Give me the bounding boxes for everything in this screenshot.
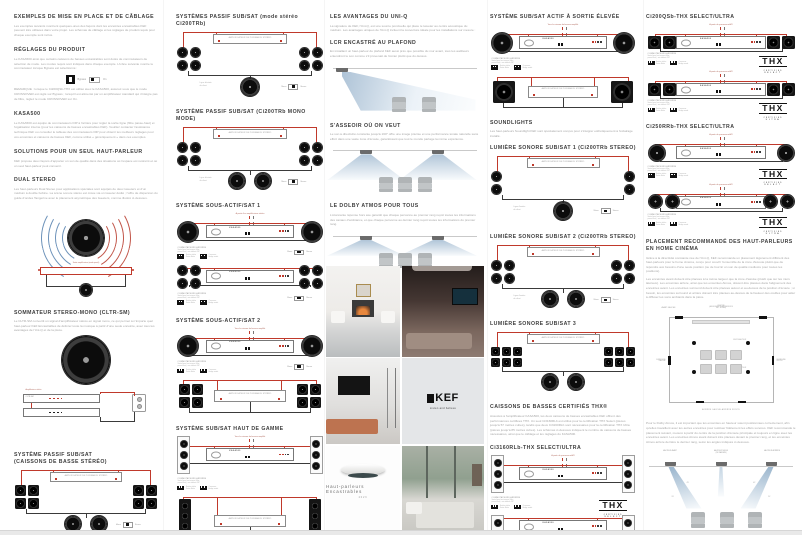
wire-segment (660, 161, 783, 162)
ceiling-speaker-icon (360, 236, 372, 240)
wire-segment (204, 255, 205, 257)
terminal-icon (57, 398, 59, 400)
section: LUMIÈRE SONORE SUB/SAT 2 (Ci200TRb STERE… (490, 234, 636, 312)
section-paragraph: KEF propose deux façons d'apporter un so… (14, 159, 158, 168)
kef-logo-mark-icon (427, 394, 434, 403)
mode-toggle: MonoStereo (287, 364, 312, 370)
terminal-icon (279, 454, 281, 456)
toggle-knob-icon (297, 297, 300, 299)
toggle-label: Stereo (135, 524, 141, 526)
kef-logo: KEF (427, 393, 459, 404)
wire-segment (281, 497, 282, 515)
switch-settings-caption: COMMUTATEURS ARRIÈRESortie ligne haut ni… (491, 58, 558, 70)
section-paragraph: Les enceintes avant doivent être placées… (646, 277, 796, 300)
wire-segment (204, 301, 205, 303)
square-speaker-icon (179, 397, 190, 408)
wall-art (356, 284, 371, 297)
ceiling-speaker-icon (432, 236, 444, 240)
terminal-icon (597, 525, 599, 527)
wire-segment (503, 51, 623, 52)
wire-segment (515, 66, 516, 68)
terminal-icon (597, 41, 599, 43)
fold-line (163, 0, 164, 531)
diagram-caption: Ligne d'entréedu client (200, 177, 212, 182)
switch-icon (245, 456, 247, 459)
window-frame (426, 446, 428, 498)
kasa-amplifier: KASA500 (676, 146, 766, 159)
section: Ci250RRb-THX SELECT/ULTRAÀ partir du pro… (646, 124, 796, 229)
chair-icon (398, 177, 412, 192)
switch-icon (248, 232, 250, 235)
wire-segment (201, 486, 202, 488)
amplifier-label: AMPLIFICATEUR DE PUISSANCE STÉRÉO (528, 337, 599, 339)
speaker-group (15, 485, 39, 509)
section: LE DOLBY ATMOS POUR TOUSL'étonnante répo… (330, 203, 480, 270)
dip-label: Sortie filtrée (186, 256, 196, 258)
square-speaker-icon (179, 384, 190, 395)
round-speaker-icon (491, 32, 513, 54)
terminal-icon (285, 345, 287, 347)
dip-switch-icon (670, 61, 677, 66)
toggle-track-icon (294, 364, 304, 370)
terminal-icon (751, 201, 753, 203)
tv-screen (452, 288, 478, 305)
wire-segment (499, 34, 628, 35)
ceiling-speaker-dot-icon (692, 341, 696, 345)
atmos-label-group: HAUTEUR MILIEU(2E RANGÉE) (703, 450, 739, 454)
speaker-group (648, 194, 680, 209)
wall-art (472, 464, 482, 486)
mode-toggle: MonoStereo (287, 250, 312, 256)
section-heading: SOLUTIONS POUR UN SEUL HAUT-PARLEUR (14, 149, 158, 156)
round-speaker-icon (491, 184, 502, 195)
wire-segment (671, 174, 672, 176)
photo-living-room-fireplace (326, 266, 400, 357)
kasa-label: KASA500 (229, 341, 240, 343)
terminal-icon (220, 523, 222, 525)
subwoofer-icon (542, 291, 558, 307)
wire-segment (201, 255, 202, 257)
wire-segment (655, 144, 787, 145)
toggle-track-icon (294, 250, 304, 256)
section-heading: CAISSONS DE BASSES CERTIFIÉS THX® (490, 404, 636, 411)
wire-segment (100, 421, 135, 422)
room-label: DE L'ÉCRAN) (691, 308, 751, 309)
wire-segment (201, 301, 202, 303)
wire-segment (181, 301, 182, 303)
speaker-group (624, 171, 635, 195)
dip-label: Sortie filtrée (186, 302, 196, 304)
tower-speaker-white-icon (491, 455, 504, 493)
thx-logo: THX (759, 217, 787, 228)
wire-segment (333, 68, 477, 69)
dip-labels: Entrée stéréoSortie filtrée (186, 254, 196, 258)
terminal-icon (282, 454, 284, 456)
square-speaker-icon (493, 81, 515, 103)
switch-icon (561, 43, 563, 46)
wire-segment (217, 497, 218, 515)
chair-icon (418, 177, 432, 192)
wire-segment (756, 81, 757, 83)
ceiling-light (412, 266, 472, 271)
square-speaker-icon (648, 83, 661, 96)
chair-seat (748, 517, 762, 524)
dip-switch-icon (514, 65, 521, 70)
round-speaker-icon (190, 278, 201, 289)
wire-segment (21, 470, 151, 471)
chair-seat (418, 183, 432, 190)
round-speaker-icon (613, 32, 635, 54)
dip-group: CrossoverBridge mode (200, 300, 218, 305)
speaker-group (297, 384, 321, 408)
round-speaker-icon (301, 221, 323, 243)
wire-segment (284, 223, 285, 225)
dip-switch-icon (200, 300, 207, 305)
fold-line (324, 0, 325, 531)
square-speaker-icon (28, 498, 39, 509)
kasa-label: KASA500 (229, 450, 240, 452)
amplifier-label: AMPLIFICATEUR DE PUISSANCE STÉRÉO (51, 475, 121, 477)
fire (356, 306, 370, 315)
wire-segment (563, 288, 564, 293)
toggle-label: Mono (594, 299, 599, 301)
section: LUMIÈRE SONORE SUB/SAT 1 (Ci200TRb STERE… (490, 145, 636, 225)
section: CAISSONS DE BASSES CERTIFIÉS THX®Associé… (490, 404, 636, 437)
toggle-label: Stereo (306, 251, 312, 253)
amplifier-bar: AMPLIFICATEUR DE PUISSANCE STÉRÉO (214, 390, 285, 402)
dip-group: Entrée stéréoSortie filtrée (648, 108, 667, 113)
square-speaker-icon (782, 36, 795, 49)
square-speaker-icon (663, 83, 676, 96)
atmos-label-group: HAUTEUR AVANT (652, 450, 688, 452)
round-speaker-icon (780, 194, 795, 209)
chair-icon (422, 97, 436, 112)
ceiling-speaker-icon (336, 68, 348, 72)
atmos-label-group: HAUTEUR ARRIÈRE (754, 450, 790, 452)
kef-oval-icon (211, 228, 221, 235)
toggle-track-icon (288, 179, 298, 185)
amplifier-label: AMPLIFICATEUR DE PUISSANCE STÉRÉO (215, 393, 284, 395)
switch-icon (719, 43, 721, 46)
sound-beam (717, 467, 725, 497)
round-speaker-icon (491, 260, 502, 271)
ceiling-speaker-icon (665, 462, 676, 466)
wire-segment (204, 486, 205, 488)
diagram-top-label: À partir du processeur A/V (646, 71, 796, 73)
wire-segment (333, 150, 477, 151)
terminal-icon (756, 201, 758, 203)
round-speaker-icon (299, 278, 310, 289)
section: SOUNDLIGHTSLes haut-parleurs Soundlight … (490, 120, 636, 139)
speaker-group (491, 260, 515, 284)
speaker-group (177, 265, 201, 289)
wire-segment (185, 446, 315, 447)
dip-label: Bridge mode (209, 302, 219, 304)
switch-track-icon (89, 77, 100, 83)
acoustic-illustration (330, 145, 480, 195)
kasa-amplifier: KASA500 (519, 36, 607, 49)
sound-cone (342, 72, 476, 111)
wire-segment (46, 275, 47, 286)
diagram-top-label: À partir du processeur A/V (646, 24, 796, 26)
toggle-label: Mono (287, 251, 292, 253)
dip-row: Entrée stéréoSortie filtréeCrossoverBrid… (177, 300, 245, 305)
driver-icon (312, 513, 318, 519)
round-speaker-icon (624, 260, 635, 271)
wire-segment (597, 518, 598, 520)
tower-speaker-white-icon (622, 455, 635, 493)
wire-segment (179, 486, 180, 488)
wire-segment (671, 222, 672, 224)
chair-icon (720, 512, 734, 528)
round-speaker-icon (190, 60, 201, 71)
round-speaker-icon (299, 60, 310, 71)
chair-seat (379, 183, 393, 190)
wiring-diagram: À partir d'un amplificateur stéréoKASA50… (176, 213, 324, 262)
amp-box (23, 408, 101, 417)
mode-toggle: MonoStereo (594, 297, 619, 303)
square-speaker-icon (663, 36, 676, 49)
dip-switch-icon (200, 254, 207, 259)
switch-icon (716, 43, 718, 46)
wire-segment (183, 32, 316, 33)
round-speaker-icon (777, 144, 795, 162)
diagram-caption: Ligne d'entréedu client (513, 206, 525, 211)
section-paragraph: Les haut-parleurs Soundlight KEF sont sp… (490, 129, 636, 138)
chair-icon (392, 97, 406, 112)
section-heading: LE DOLBY ATMOS POUR TOUS (330, 203, 480, 210)
toggle-knob-icon (604, 210, 607, 212)
square-speaker-icon (146, 498, 157, 509)
kasa-label: KASA500 (700, 38, 711, 40)
round-speaker-icon (299, 47, 310, 58)
dip-row: Entrée stéréoSortie filtréeCrossoverBrid… (648, 222, 717, 227)
dip-label: Sortie filtrée (656, 63, 666, 65)
kasa-amplifier: KASA500 (206, 448, 295, 461)
switch-icon (248, 277, 250, 280)
chair-base (691, 524, 705, 527)
wire-segment (674, 108, 675, 110)
terminal-icon (287, 275, 289, 277)
section-heading: EXEMPLES DE MISE EN PLACE ET DE CÂBLAGE (14, 14, 158, 21)
wiring-diagram: AMPLIFICATEUR DE PUISSANCE STÉRÉOLigne d… (176, 31, 324, 101)
subwoofer-icon (68, 220, 104, 256)
section-heading: SYSTÈME PASSIF SUB/SAT (CAISSONS DE BASS… (14, 452, 158, 466)
round-speaker-icon (177, 60, 188, 71)
terminal-icon (756, 88, 758, 90)
wire-segment (311, 166, 312, 170)
switch-icon (719, 203, 721, 206)
section-paragraph: Le KASA500 ainsi que certains caissons d… (14, 57, 158, 71)
wire-segment (189, 285, 310, 286)
terminal-icon (759, 88, 761, 90)
round-speaker-icon (190, 142, 201, 153)
wall-speaker-icon (696, 401, 704, 404)
mode-toggle: MonoStereo (281, 179, 306, 185)
room-outline: ATMOS/HAUTEURATMOS/HAUTEUR (669, 317, 774, 403)
section-heading: S'ASSEOIR OÙ ON VEUT (330, 123, 480, 130)
wire-segment (674, 174, 675, 176)
wire-segment (651, 174, 652, 176)
switch-label: Bypass (78, 78, 87, 81)
brochure-column: Ci200QSb-THX SELECT/ULTRAÀ partir du pro… (646, 0, 796, 530)
section-heading: LES AVANTAGES DU UNI-Q (330, 14, 480, 21)
wire-segment (281, 380, 282, 390)
terminal-icon (279, 230, 281, 232)
switch-icon (561, 475, 563, 478)
round-speaker-icon (504, 260, 515, 271)
wire-segment (623, 195, 624, 199)
terminal-icon (287, 230, 289, 232)
wire-segment (674, 222, 675, 224)
round-speaker-icon (624, 459, 632, 467)
wire-segment (493, 505, 494, 507)
dip-label: Sortie filtrée (500, 507, 510, 509)
dip-labels: Entrée stéréoSortie filtrée (656, 173, 666, 177)
amplifier-bar: AMPLIFICATEUR DE PUISSANCE STÉRÉO (214, 515, 285, 527)
wire-segment (69, 77, 72, 82)
round-speaker-icon (312, 451, 320, 459)
round-speaker-icon (177, 278, 188, 289)
speaker-group (299, 265, 323, 289)
dip-label: Bridge mode (679, 224, 689, 226)
chair-base (748, 524, 762, 527)
round-speaker-icon (648, 144, 666, 162)
wire-segment (134, 392, 135, 396)
sofa (406, 502, 422, 514)
wiring-diagram: À partir du processeur A/VKASA500COMMUTA… (646, 71, 796, 115)
square-speaker-icon (626, 347, 635, 356)
driver-icon (182, 503, 188, 509)
wire-segment (499, 465, 628, 466)
speaker-group (177, 142, 201, 166)
switch-icon (716, 153, 718, 156)
wire-segment (649, 222, 650, 224)
photo-glass-room (402, 446, 484, 532)
speaker-group (611, 260, 635, 284)
section: SYSTÈMES PASSIF SUB/SAT (mode stéréo Ci2… (176, 14, 324, 101)
ceiling-speaker-icon (360, 150, 372, 154)
wire-segment (499, 518, 628, 519)
wire-segment (674, 61, 675, 63)
wire-segment (183, 127, 316, 128)
caption-line: passe-haut) : voir tableau DIP (491, 62, 558, 64)
dip-labels: CrossoverBridge mode (209, 300, 219, 304)
terminal-icon (49, 412, 51, 414)
dip-row: Entrée stéréoSortie filtréeCrossoverBrid… (491, 65, 558, 70)
amplifier-bar: AMPLIFICATEUR DE PUISSANCE STÉRÉO (213, 129, 287, 139)
chair-seat (720, 517, 734, 524)
ceiling-speaker-dot-icon (746, 370, 750, 374)
terminal-icon (751, 88, 753, 90)
wire-segment (284, 268, 285, 270)
kasa-label: KASA500 (229, 227, 240, 229)
terminal-icon (751, 151, 753, 153)
kef-oval-icon (681, 39, 691, 46)
angle-label: 45° (753, 482, 756, 484)
atmos-label: HAUTEUR ARRIÈRE (754, 450, 790, 452)
square-speaker-icon (133, 485, 144, 496)
terminal-icon (592, 340, 594, 342)
room-label: AVANT GAUCHE (649, 307, 688, 309)
dip-group: CrossoverBridge mode (670, 108, 688, 113)
square-speaker-icon (513, 358, 522, 367)
wire-segment (651, 61, 652, 63)
wire-segment (502, 367, 503, 371)
toggle-track-icon (601, 208, 611, 214)
sound-cone (327, 154, 405, 180)
kasa-amplifier: KASA500 (519, 467, 607, 480)
terminal-icon (595, 525, 597, 527)
toggle-label: Stereo (300, 181, 306, 183)
wiring-diagram: Vers le caisson de basses amplifiéKASA50… (176, 328, 324, 377)
section-heading: Ci250RRb-THX SELECT/ULTRA (646, 124, 796, 131)
speaker-group (491, 347, 522, 367)
round-speaker-icon (180, 462, 188, 470)
square-speaker-icon (192, 384, 203, 395)
chair-icon (379, 177, 393, 192)
wire-segment (756, 194, 757, 196)
dip-labels: Entrée stéréoSortie filtrée (500, 505, 510, 509)
wire-segment (623, 367, 624, 371)
wire-segment (310, 408, 311, 412)
diagram-caption: Ligne d'entréedu client (513, 295, 525, 300)
round-speaker-icon (312, 47, 323, 58)
driver-icon (312, 523, 318, 529)
dip-row: Entrée stéréoSortie filtréeCrossoverBrid… (648, 173, 717, 178)
dip-group: Entrée stéréoSortie filtrée (648, 61, 667, 66)
wire-segment (502, 195, 503, 199)
window-frame (454, 446, 456, 498)
subwoofer-icon (568, 291, 584, 307)
screen (692, 320, 750, 325)
terminal-icon (61, 412, 63, 414)
brochure-column: LES AVANTAGES DU UNI-QLa signature de KE… (330, 0, 480, 271)
kef-oval-icon (524, 39, 534, 46)
round-speaker-icon (312, 60, 323, 71)
wiring-diagram: AMPLIFICATEUR DE PUISSANCE STÉRÉOLigne d… (490, 155, 636, 225)
chair-base (422, 109, 436, 112)
kef-oval-icon (524, 470, 534, 477)
wire-segment (495, 66, 496, 68)
chair-seat (392, 102, 406, 109)
square-speaker-icon (310, 384, 321, 395)
wire-segment (497, 156, 628, 157)
wire-segment (528, 518, 529, 520)
wire-segment (189, 463, 310, 464)
wire-segment (502, 284, 503, 288)
switch-settings-caption: COMMUTATEURS ARRIÈRESortie ligne haut ni… (177, 247, 245, 259)
dip-group: Entrée stéréoSortie filtrée (177, 254, 196, 259)
section: S'ASSEOIR OÙ ON VEUTLe son à directivité… (330, 123, 480, 196)
terminal-icon (532, 340, 534, 342)
round-speaker-icon (611, 273, 622, 284)
switch-settings-caption: COMMUTATEURS ARRIÈRESortie ligne haut ni… (177, 361, 245, 373)
switch-label: On (103, 78, 106, 81)
dip-group: CrossoverBridge mode (200, 486, 218, 491)
kef-tagline: Listen and believe (430, 407, 456, 410)
dip-labels: Entrée stéréoSortie filtrée (186, 300, 196, 304)
switch-settings-caption: COMMUTATEURS ARRIÈRESortie ligne haut ni… (648, 100, 717, 112)
tower-speaker-white-icon (310, 436, 323, 474)
terminal-icon (220, 398, 222, 400)
terminal-icon (61, 398, 63, 400)
driver-icon (137, 397, 142, 402)
diagram-top-label: Amplificateur stéréo (26, 389, 42, 391)
room-label: SURROUND GAUCHE (646, 360, 666, 362)
seat (730, 364, 742, 374)
page-bottom-edge (0, 530, 802, 535)
